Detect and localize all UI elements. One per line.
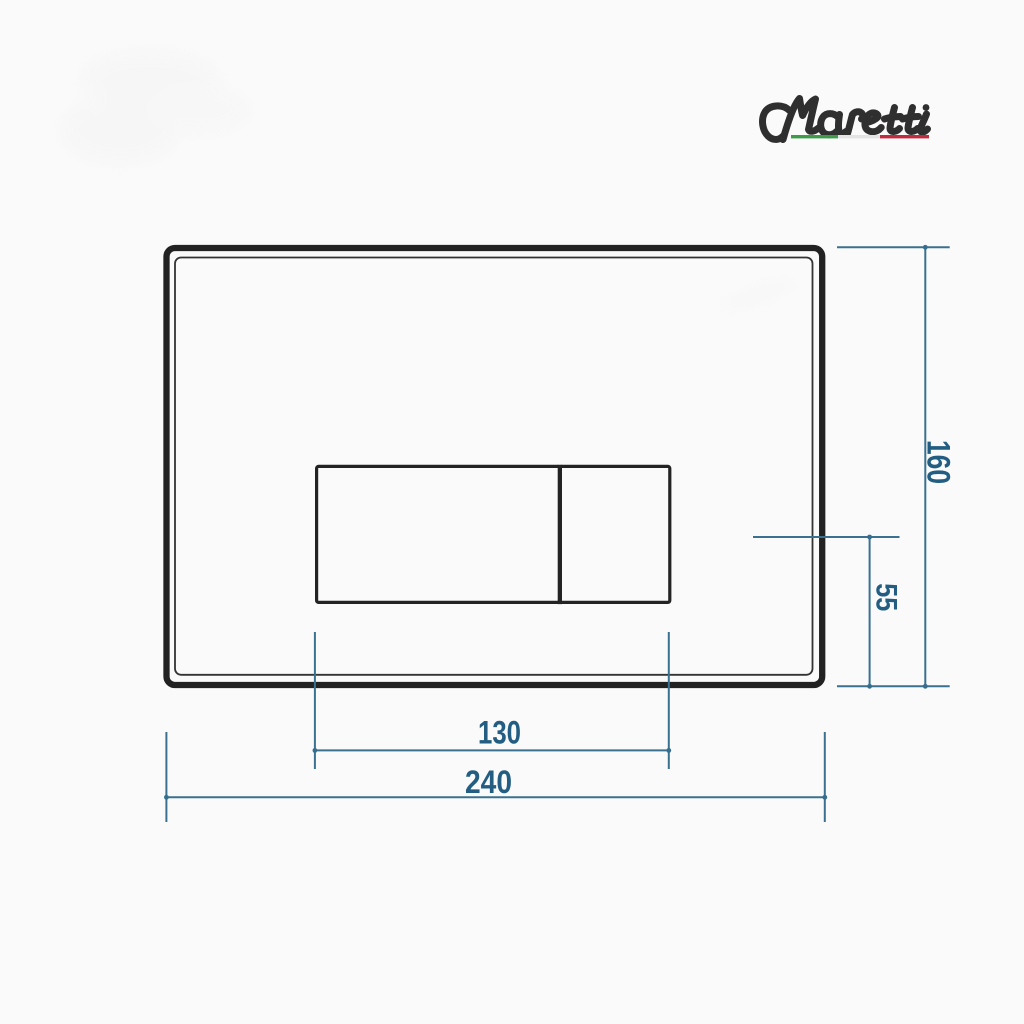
svg-text:240: 240	[465, 764, 512, 800]
svg-text:130: 130	[478, 715, 521, 751]
svg-text:160: 160	[921, 440, 957, 484]
svg-text:55: 55	[870, 583, 903, 611]
